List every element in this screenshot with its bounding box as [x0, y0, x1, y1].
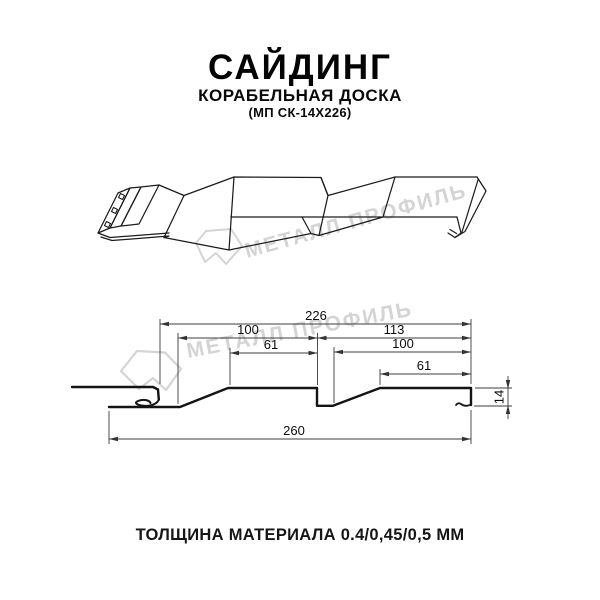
- nail-hole: [105, 222, 111, 228]
- lock-seam-curl: [136, 399, 159, 406]
- dimension-label-total-top: 226: [305, 308, 327, 323]
- dimension-label-left-flat: 61: [264, 337, 278, 352]
- profile-outline: [109, 388, 471, 407]
- watermark-brand-upper: МЕТАЛЛ ПРОФИЛЬ: [196, 179, 470, 264]
- wall-line: [72, 387, 159, 400]
- material-thickness-note: ТОЛЩИНА МАТЕРИАЛА 0.4/0,45/0,5 ММ: [0, 526, 600, 545]
- watermark-text: МЕТАЛЛ ПРОФИЛЬ: [242, 179, 470, 263]
- nail-hole: [112, 208, 118, 214]
- dimension-label-right-pitch: 100: [392, 336, 414, 351]
- right-hook-curl: [456, 403, 471, 406]
- lock-flap: [121, 185, 159, 226]
- nail-strip: [98, 188, 130, 233]
- slope1-fold: [229, 177, 234, 250]
- dimension-label-right-span: 113: [384, 322, 405, 337]
- dimension-label-left-pitch: 100: [237, 322, 259, 337]
- metall-profil-logo-icon: [196, 229, 242, 264]
- dimension-arrows: [109, 322, 510, 441]
- catalog-card: САЙДИНГ КОРАБЕЛЬНАЯ ДОСКА (МП СК-14Х226)…: [0, 0, 600, 600]
- right-end-hem: [450, 230, 457, 234]
- panel-left-edge: [164, 196, 184, 238]
- lock-hem: [101, 236, 169, 241]
- technical-drawing: МЕТАЛЛ ПРОФИЛЬ: [0, 0, 600, 600]
- nail-hole: [119, 194, 125, 200]
- cross-section-profile: [72, 387, 471, 407]
- dimension-label-right-flat: 61: [417, 358, 431, 373]
- metall-profil-logo-icon: [121, 351, 181, 390]
- right-end-front-edge: [455, 217, 461, 238]
- dimension-label-height: 14: [492, 390, 507, 404]
- dimension-label-total-bottom: 260: [283, 423, 305, 438]
